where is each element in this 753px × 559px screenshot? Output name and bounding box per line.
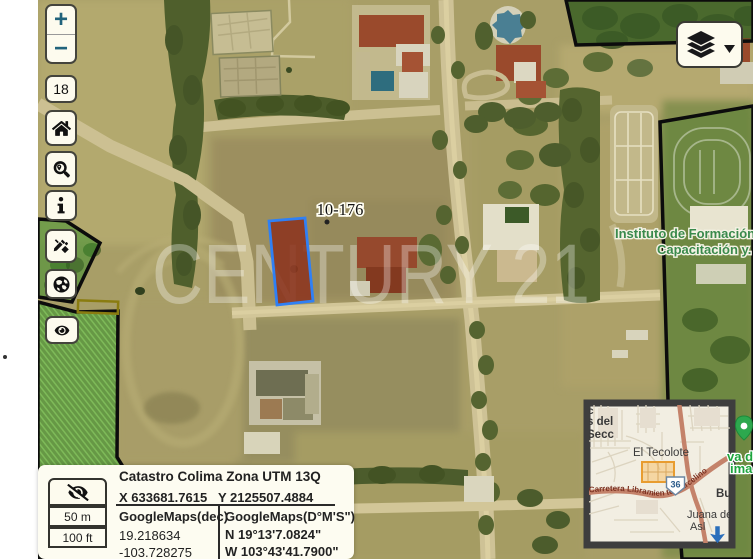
svg-text:Bu: Bu — [716, 488, 731, 500]
svg-text:Asl: Asl — [690, 521, 705, 533]
svg-text:CENTURY 21: CENTURY 21 — [152, 227, 590, 321]
svg-text:Instituto de Formación: Instituto de Formación — [615, 226, 753, 241]
svg-text:El Tecolote: El Tecolote — [633, 447, 689, 459]
svg-text:10-176: 10-176 — [317, 200, 364, 219]
svg-text:Secc: Secc — [587, 429, 614, 441]
svg-text:36: 36 — [670, 480, 680, 490]
svg-text:Juana de: Juana de — [687, 509, 732, 521]
svg-text:ima: ima — [730, 461, 753, 476]
svg-text:Capacitación y.: Capacitación y. — [657, 242, 751, 257]
svg-text:s del: s del — [587, 416, 613, 428]
